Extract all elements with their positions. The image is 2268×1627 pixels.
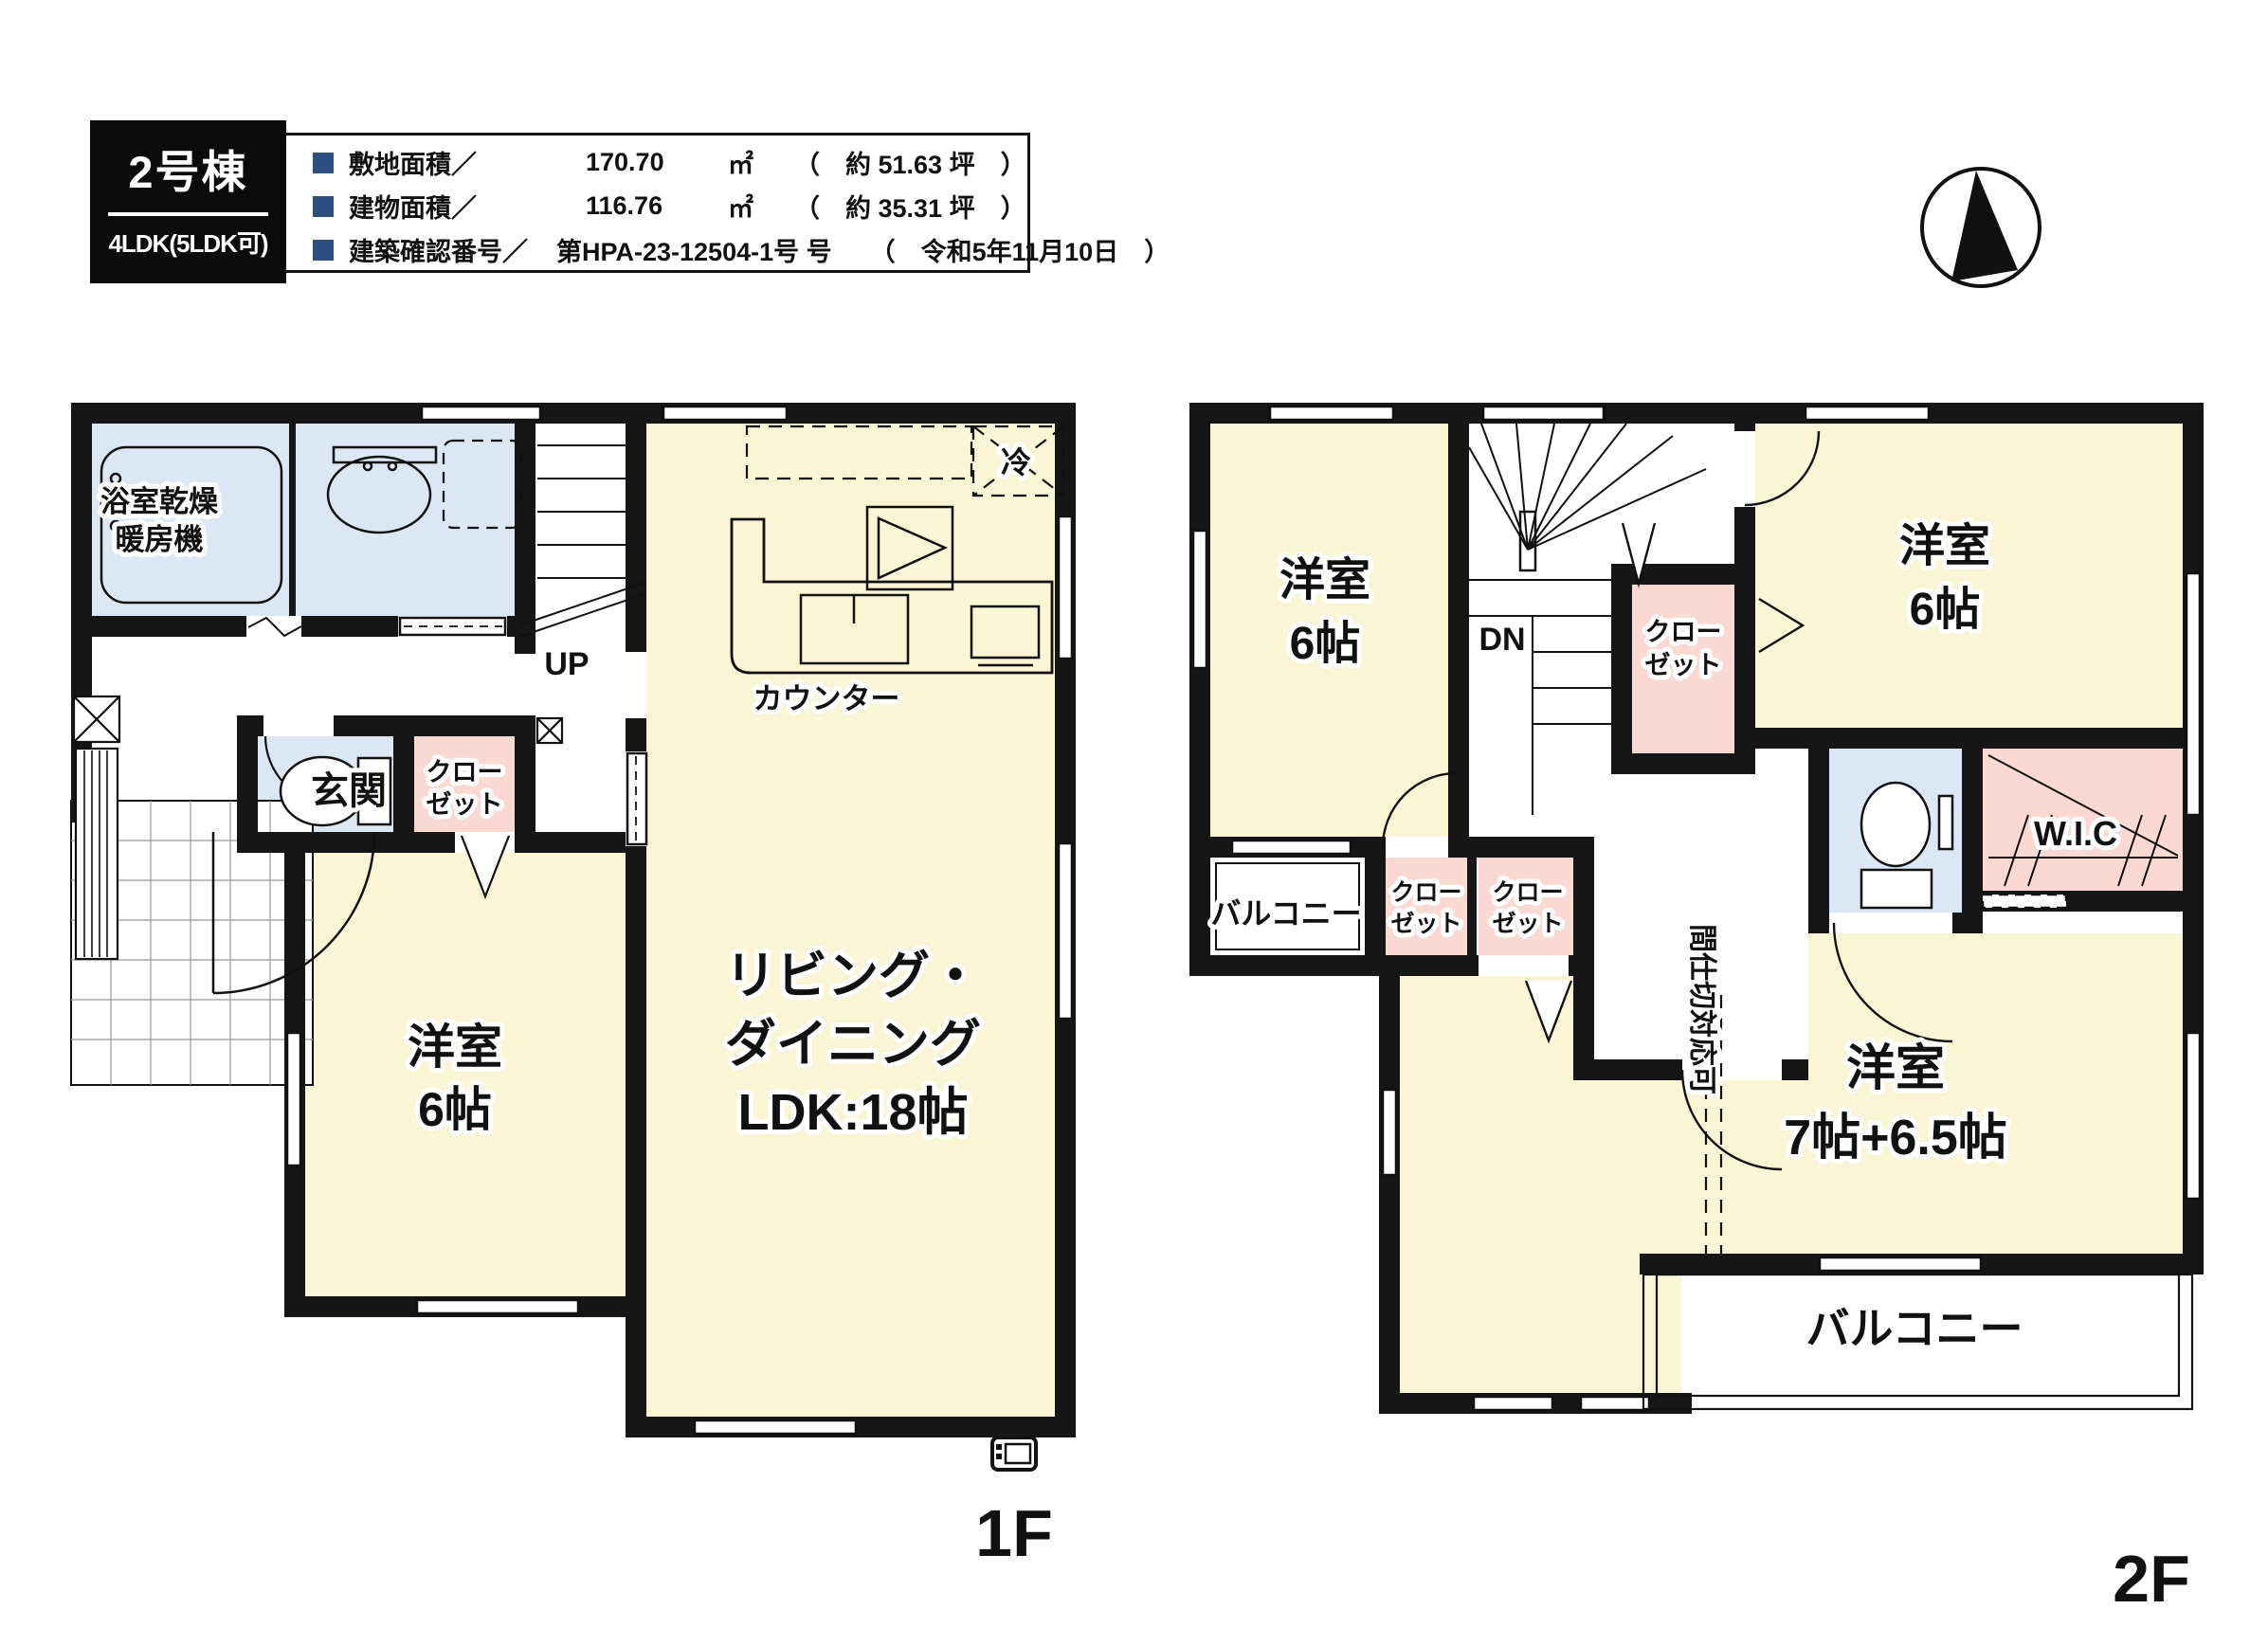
f2-closet-c bbox=[1479, 858, 1573, 955]
f2-balcony-bottom-label: バルコニー bbox=[1805, 1304, 2023, 1353]
spec-label: 建物面積／ bbox=[349, 188, 586, 225]
f1-room-washroom bbox=[296, 424, 515, 616]
spec-label: 敷地面積／ bbox=[349, 144, 586, 181]
f1-stairs-up-label: UP bbox=[544, 646, 589, 682]
f1-bedroom-label: 6帖 bbox=[418, 1083, 492, 1136]
f2-closet-b bbox=[1386, 858, 1467, 955]
f1-closet-label: ゼット bbox=[426, 790, 503, 819]
spec-label: 建築確認番号／ bbox=[349, 231, 528, 268]
f2-bedroom-nw-label: 6帖 bbox=[1290, 619, 1361, 669]
f2-closet-b-label: ゼット bbox=[1390, 911, 1461, 937]
f2-bedroom-nw-label: 洋室 bbox=[1279, 555, 1370, 606]
spec-note: （ 約 35.31 坪 ） bbox=[794, 188, 1026, 225]
bullet-square-icon bbox=[313, 240, 334, 261]
f2-partition-note: 間仕切対応可 bbox=[1686, 924, 1717, 1094]
f2-bedroom-s-label: 7帖+6.5帖 bbox=[1784, 1111, 2007, 1166]
f1-bathroom-label: 浴室乾燥 bbox=[100, 485, 219, 518]
compass-north-icon bbox=[1922, 169, 2040, 286]
f1-room-bedroom-6 bbox=[305, 853, 626, 1296]
f2-closet-c-label: ゼット bbox=[1492, 911, 1563, 937]
unit-name: 2号棟 bbox=[128, 136, 247, 201]
floor-1-plan: 浴室乾燥 暖房機 玄関 クロー ゼット 洋室 6帖 リビング・ ダイニング LD… bbox=[71, 403, 1076, 1570]
f2-bedroom-ne-label: 洋室 bbox=[1899, 521, 1990, 571]
spec-unit: ㎡ bbox=[728, 144, 794, 181]
f1-closet-label: クロー bbox=[426, 758, 503, 786]
unit-title-tab: 2号棟 4LDK(5LDK可) bbox=[90, 120, 286, 283]
f2-closet-a-label: ゼット bbox=[1645, 651, 1722, 679]
spec-value: 116.76 bbox=[586, 191, 728, 221]
floor-2-plan: 洋室 6帖 DN クロー ゼット 洋室 6帖 W.I.C バルコニー クロー ゼ… bbox=[1189, 403, 2204, 1616]
f1-room-bathroom bbox=[92, 424, 289, 616]
divider bbox=[108, 212, 269, 216]
f1-ldk-label: LDK:18帖 bbox=[737, 1084, 968, 1141]
f2-room-bedroom-ne bbox=[1755, 424, 2183, 728]
f1-ldk-label: ダイニング bbox=[725, 1016, 981, 1073]
f2-closet-c-label: クロー bbox=[1492, 879, 1563, 906]
f1-bedroom-label: 洋室 bbox=[408, 1021, 502, 1074]
spec-row-building-area: 建物面積／ 116.76 ㎡ （ 約 35.31 坪 ） bbox=[313, 188, 1026, 225]
bullet-square-icon bbox=[313, 196, 334, 217]
spec-note: （ 令和5年11月10日 ） bbox=[870, 231, 1170, 268]
f2-floor-label: 2F bbox=[2113, 1542, 2190, 1616]
f2-balcony-left-label: バルコニー bbox=[1210, 896, 1361, 931]
spec-value: 第HPA-23-12504-1号 号 bbox=[556, 231, 832, 268]
f1-counter-label: カウンター bbox=[753, 682, 900, 715]
f2-stairs-dn-label: DN bbox=[1479, 622, 1525, 658]
spec-row-confirmation-number: 建築確認番号／ 第HPA-23-12504-1号 号 （ 令和5年11月10日 … bbox=[313, 231, 1170, 268]
layout-type: 4LDK(5LDK可) bbox=[108, 225, 267, 260]
f1-panel-icon bbox=[992, 1437, 1036, 1470]
f1-fridge-label: 冷 bbox=[1001, 445, 1031, 479]
f2-closet-b-label: クロー bbox=[1390, 879, 1461, 906]
spec-row-site-area: 敷地面積／ 170.70 ㎡ （ 約 51.63 坪 ） bbox=[313, 144, 1026, 181]
f2-bedroom-ne-label: 6帖 bbox=[1910, 585, 1981, 635]
spec-note: （ 約 51.63 坪 ） bbox=[794, 144, 1026, 181]
f2-wic-label: W.I.C bbox=[2034, 814, 2117, 853]
f1-entrance-label: 玄関 bbox=[311, 770, 387, 812]
bullet-square-icon bbox=[313, 153, 334, 173]
spec-value: 170.70 bbox=[586, 148, 728, 177]
f2-bedroom-s-label: 洋室 bbox=[1846, 1041, 1945, 1096]
f1-floor-label: 1F bbox=[975, 1496, 1053, 1570]
f1-louver-window bbox=[76, 749, 118, 959]
f1-ldk-label: リビング・ bbox=[725, 948, 981, 1004]
f2-closet-a-label: クロー bbox=[1645, 618, 1722, 646]
spec-unit: ㎡ bbox=[728, 188, 794, 225]
f1-bathroom-label: 暖房機 bbox=[116, 523, 204, 556]
f1-bath-folding-door bbox=[248, 618, 301, 636]
f1-room-ldk bbox=[646, 424, 1055, 1417]
